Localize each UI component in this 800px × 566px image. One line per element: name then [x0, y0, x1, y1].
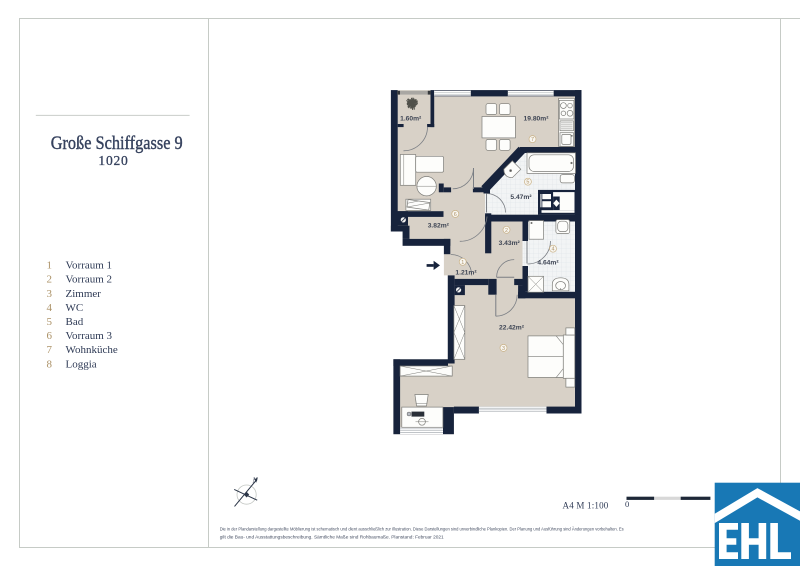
svg-text:2: 2 [47, 274, 53, 286]
svg-text:2: 2 [505, 228, 508, 234]
svg-text:3.82m²: 3.82m² [428, 223, 450, 230]
svg-text:22.42m²: 22.42m² [499, 324, 525, 331]
svg-text:1.60m²: 1.60m² [400, 116, 422, 123]
svg-text:5.47m²: 5.47m² [510, 194, 532, 201]
svg-text:Große Schiffgasse 9: Große Schiffgasse 9 [51, 134, 183, 154]
svg-text:4.64m²: 4.64m² [537, 260, 559, 267]
svg-text:8: 8 [47, 358, 53, 370]
svg-text:Vorraum 3: Vorraum 3 [66, 330, 113, 342]
svg-text:1020: 1020 [98, 153, 128, 168]
svg-text:A4 M 1:100: A4 M 1:100 [563, 501, 609, 511]
svg-text:4: 4 [552, 247, 555, 253]
svg-text:4: 4 [47, 302, 53, 314]
svg-text:Die in der Plandarstellung dar: Die in der Plandarstellung dargestellte … [220, 526, 625, 533]
svg-text:1: 1 [461, 260, 464, 266]
svg-text:Bad: Bad [66, 316, 84, 328]
svg-text:6: 6 [454, 212, 457, 218]
svg-text:3: 3 [502, 346, 505, 352]
svg-text:3: 3 [47, 288, 53, 300]
svg-text:7: 7 [47, 344, 53, 356]
svg-text:Wohnküche: Wohnküche [66, 344, 118, 356]
svg-text:1.21m²: 1.21m² [455, 269, 477, 276]
svg-text:7: 7 [531, 137, 534, 143]
svg-text:6: 6 [47, 330, 53, 342]
svg-text:WC: WC [66, 302, 84, 314]
svg-text:3.43m²: 3.43m² [499, 240, 521, 247]
svg-text:Vorraum 2: Vorraum 2 [66, 274, 113, 286]
svg-text:5: 5 [526, 180, 529, 186]
svg-text:5: 5 [47, 316, 53, 328]
svg-text:1: 1 [47, 260, 53, 272]
svg-text:19.80m²: 19.80m² [524, 115, 550, 122]
svg-text:Zimmer: Zimmer [66, 288, 102, 300]
svg-text:gilt die Bau- und Ausstattungs: gilt die Bau- und Ausstattungsbeschreibu… [220, 535, 444, 541]
svg-text:Loggia: Loggia [66, 358, 97, 370]
svg-text:Vorraum 1: Vorraum 1 [66, 260, 113, 272]
svg-text:0: 0 [625, 499, 629, 509]
